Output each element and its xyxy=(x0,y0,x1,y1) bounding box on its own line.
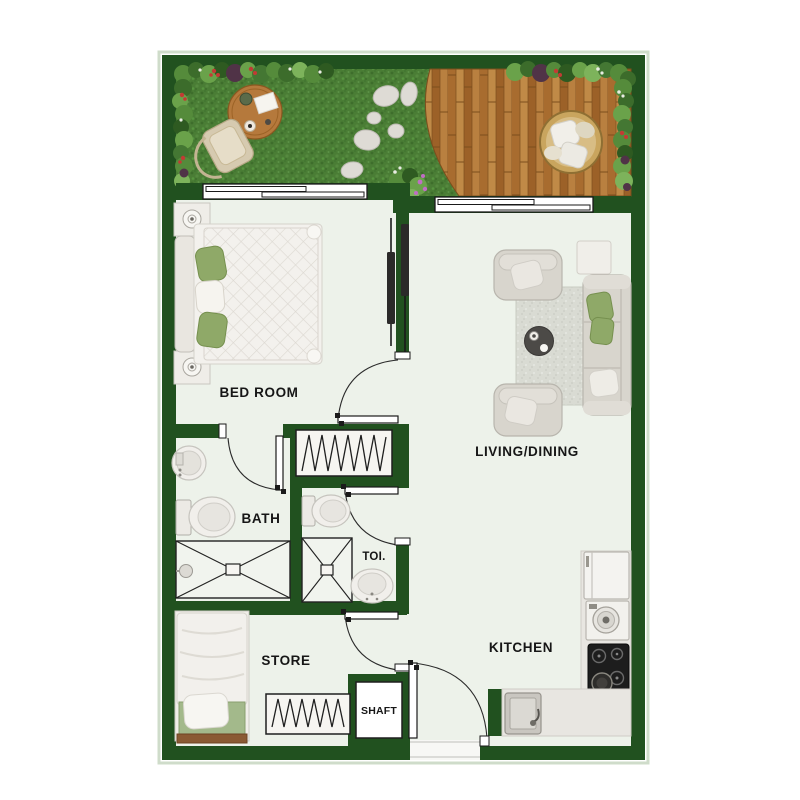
toi-basin-icon xyxy=(351,569,393,603)
armchair-icon xyxy=(494,250,562,300)
double-bed-icon xyxy=(174,203,322,384)
room-label-living-dining: LIVING/DINING xyxy=(475,444,579,459)
room-label-bath: BATH xyxy=(242,511,281,526)
room-label-store: STORE xyxy=(261,653,310,668)
room-label-kitchen: KITCHEN xyxy=(489,640,553,655)
room-label-toilet: TOI. xyxy=(362,551,385,563)
single-bed-icon xyxy=(175,611,249,743)
room-label-bedroom: BED ROOM xyxy=(219,385,298,400)
washing-machine-icon xyxy=(586,601,629,640)
bedroom-window xyxy=(203,184,367,199)
shower-icon xyxy=(302,538,352,602)
washbasin-icon xyxy=(172,446,206,480)
floor-plan-page: BED ROOM BATH TOI. LIVING/DINING STORE S… xyxy=(0,0,800,800)
toilet-icon xyxy=(302,495,350,527)
coffee-table-icon xyxy=(525,327,554,356)
side-table-icon xyxy=(577,241,611,274)
kitchen-sink-icon xyxy=(505,693,541,734)
garden-daybed-icon xyxy=(540,111,602,173)
garden xyxy=(172,61,636,203)
armchair-icon xyxy=(494,384,562,436)
floor-plan-svg: BED ROOM BATH TOI. LIVING/DINING STORE S… xyxy=(0,0,800,800)
living-window xyxy=(435,197,593,212)
store-wardrobe-icon xyxy=(266,694,350,734)
bedroom-wardrobe-icon xyxy=(296,430,392,476)
toilet-icon xyxy=(176,497,235,537)
shower-icon xyxy=(176,541,290,598)
room-label-shaft: SHAFT xyxy=(361,705,397,717)
sofa-icon xyxy=(583,275,631,415)
refrigerator-icon xyxy=(584,552,629,599)
